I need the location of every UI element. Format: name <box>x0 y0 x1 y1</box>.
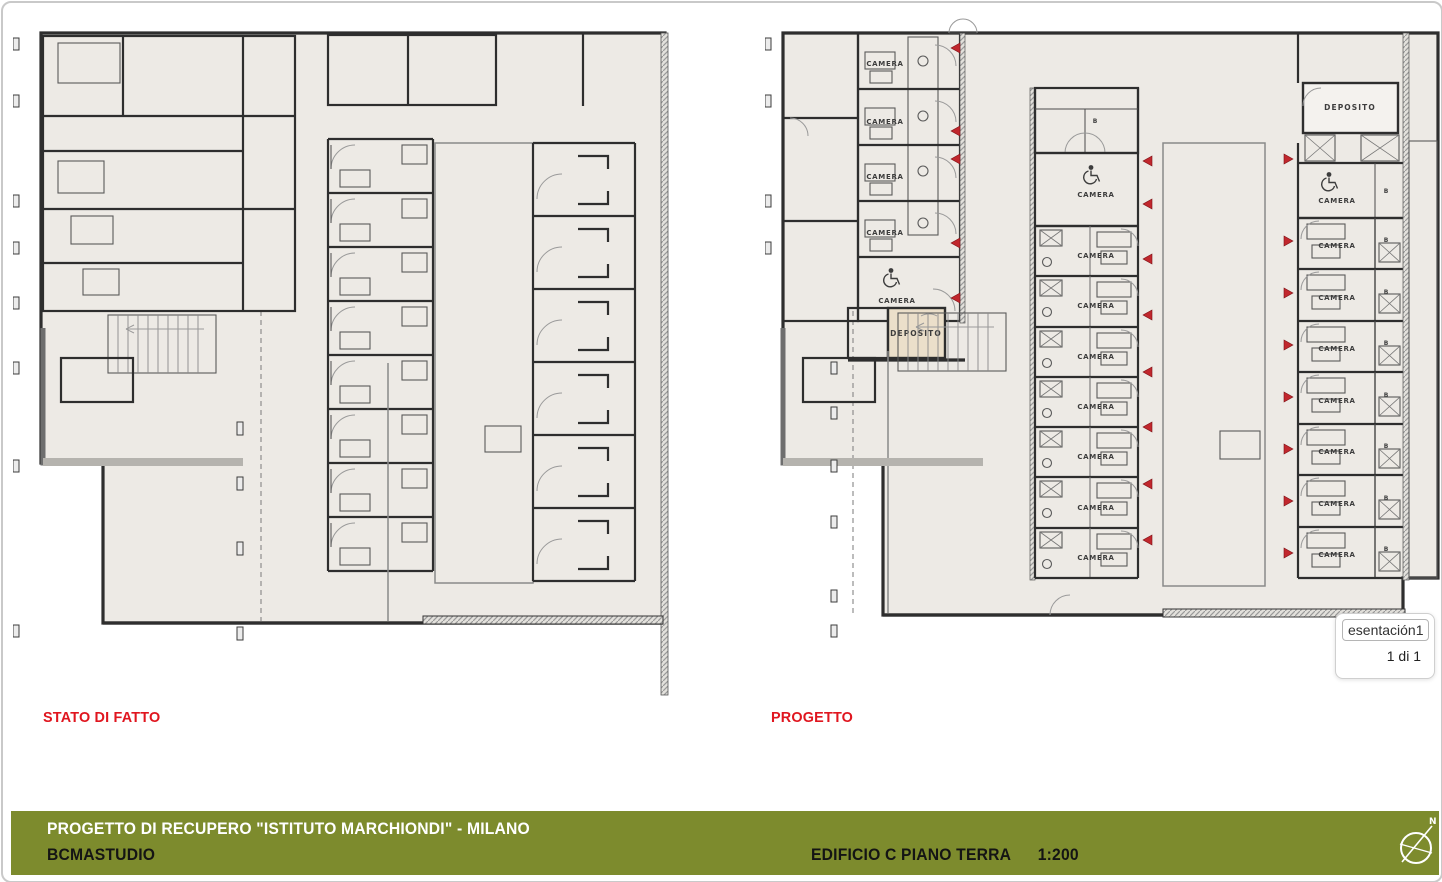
svg-text:CAMERA: CAMERA <box>1318 500 1355 508</box>
building-footprint <box>41 33 665 623</box>
project-title: PROGETTO DI RECUPERO "ISTITUTO MARCHIOND… <box>47 820 530 839</box>
svg-text:CAMERA: CAMERA <box>1318 551 1355 559</box>
svg-text:CAMERA: CAMERA <box>1077 403 1114 411</box>
slide-canvas: CAMERA CAMERA CAMERA CAMERA CAMERA DEPOS… <box>1 1 1442 882</box>
sheet-title-group: EDIFICIO C PIANO TERRA1:200 <box>811 846 1079 865</box>
drawing-scale: 1:200 <box>1038 846 1079 864</box>
svg-text:CAMERA: CAMERA <box>866 173 903 181</box>
svg-text:CAMERA: CAMERA <box>1318 345 1355 353</box>
svg-text:CAMERA: CAMERA <box>1077 504 1114 512</box>
north-label: N <box>1429 817 1437 827</box>
slide-name-field[interactable]: esentación1 <box>1342 619 1429 641</box>
svg-text:CAMERA: CAMERA <box>1077 554 1114 562</box>
svg-text:DEPOSITO: DEPOSITO <box>1324 103 1376 112</box>
svg-text:CAMERA: CAMERA <box>878 297 915 305</box>
svg-text:B: B <box>1384 495 1389 502</box>
svg-text:B: B <box>1384 392 1389 399</box>
stato-di-fatto-plan-drawing <box>13 11 685 706</box>
presentation-slide: CAMERA CAMERA CAMERA CAMERA CAMERA DEPOS… <box>0 0 1442 882</box>
studio-name: BCMASTUDIO <box>47 846 155 865</box>
title-bar: PROGETTO DI RECUPERO "ISTITUTO MARCHIOND… <box>11 811 1439 875</box>
svg-text:CAMERA: CAMERA <box>1077 191 1114 199</box>
progetto-caption: PROGETTO <box>771 709 853 726</box>
north-compass-icon: N <box>1395 815 1441 873</box>
progetto-plan-drawing: CAMERA CAMERA CAMERA CAMERA CAMERA DEPOS… <box>765 11 1442 706</box>
svg-text:CAMERA: CAMERA <box>1318 294 1355 302</box>
svg-text:B: B <box>1384 237 1389 244</box>
svg-text:CAMERA: CAMERA <box>1318 197 1355 205</box>
main-entrance-doors <box>949 19 977 33</box>
svg-text:CAMERA: CAMERA <box>1318 397 1355 405</box>
south-glazed-wall <box>423 616 663 624</box>
stato-di-fatto-caption: STATO DI FATTO <box>43 709 160 726</box>
svg-text:B: B <box>1384 188 1389 195</box>
slide-name-popup[interactable]: esentación1 1 di 1 <box>1335 613 1435 679</box>
slide-page-indicator: 1 di 1 <box>1336 648 1434 664</box>
sheet-title: EDIFICIO C PIANO TERRA <box>811 846 1011 864</box>
svg-text:CAMERA: CAMERA <box>866 60 903 68</box>
svg-text:B: B <box>1384 340 1389 347</box>
svg-text:B: B <box>1384 289 1389 296</box>
svg-text:B: B <box>1093 118 1098 125</box>
svg-text:CAMERA: CAMERA <box>1318 242 1355 250</box>
svg-text:CAMERA: CAMERA <box>1077 302 1114 310</box>
svg-text:CAMERA: CAMERA <box>866 118 903 126</box>
svg-text:CAMERA: CAMERA <box>1318 448 1355 456</box>
svg-text:CAMERA: CAMERA <box>1077 252 1114 260</box>
east-wall <box>661 33 668 695</box>
svg-text:CAMERA: CAMERA <box>1077 353 1114 361</box>
svg-text:B: B <box>1384 443 1389 450</box>
svg-text:CAMERA: CAMERA <box>1077 453 1114 461</box>
svg-text:B: B <box>1384 546 1389 553</box>
svg-text:CAMERA: CAMERA <box>866 229 903 237</box>
